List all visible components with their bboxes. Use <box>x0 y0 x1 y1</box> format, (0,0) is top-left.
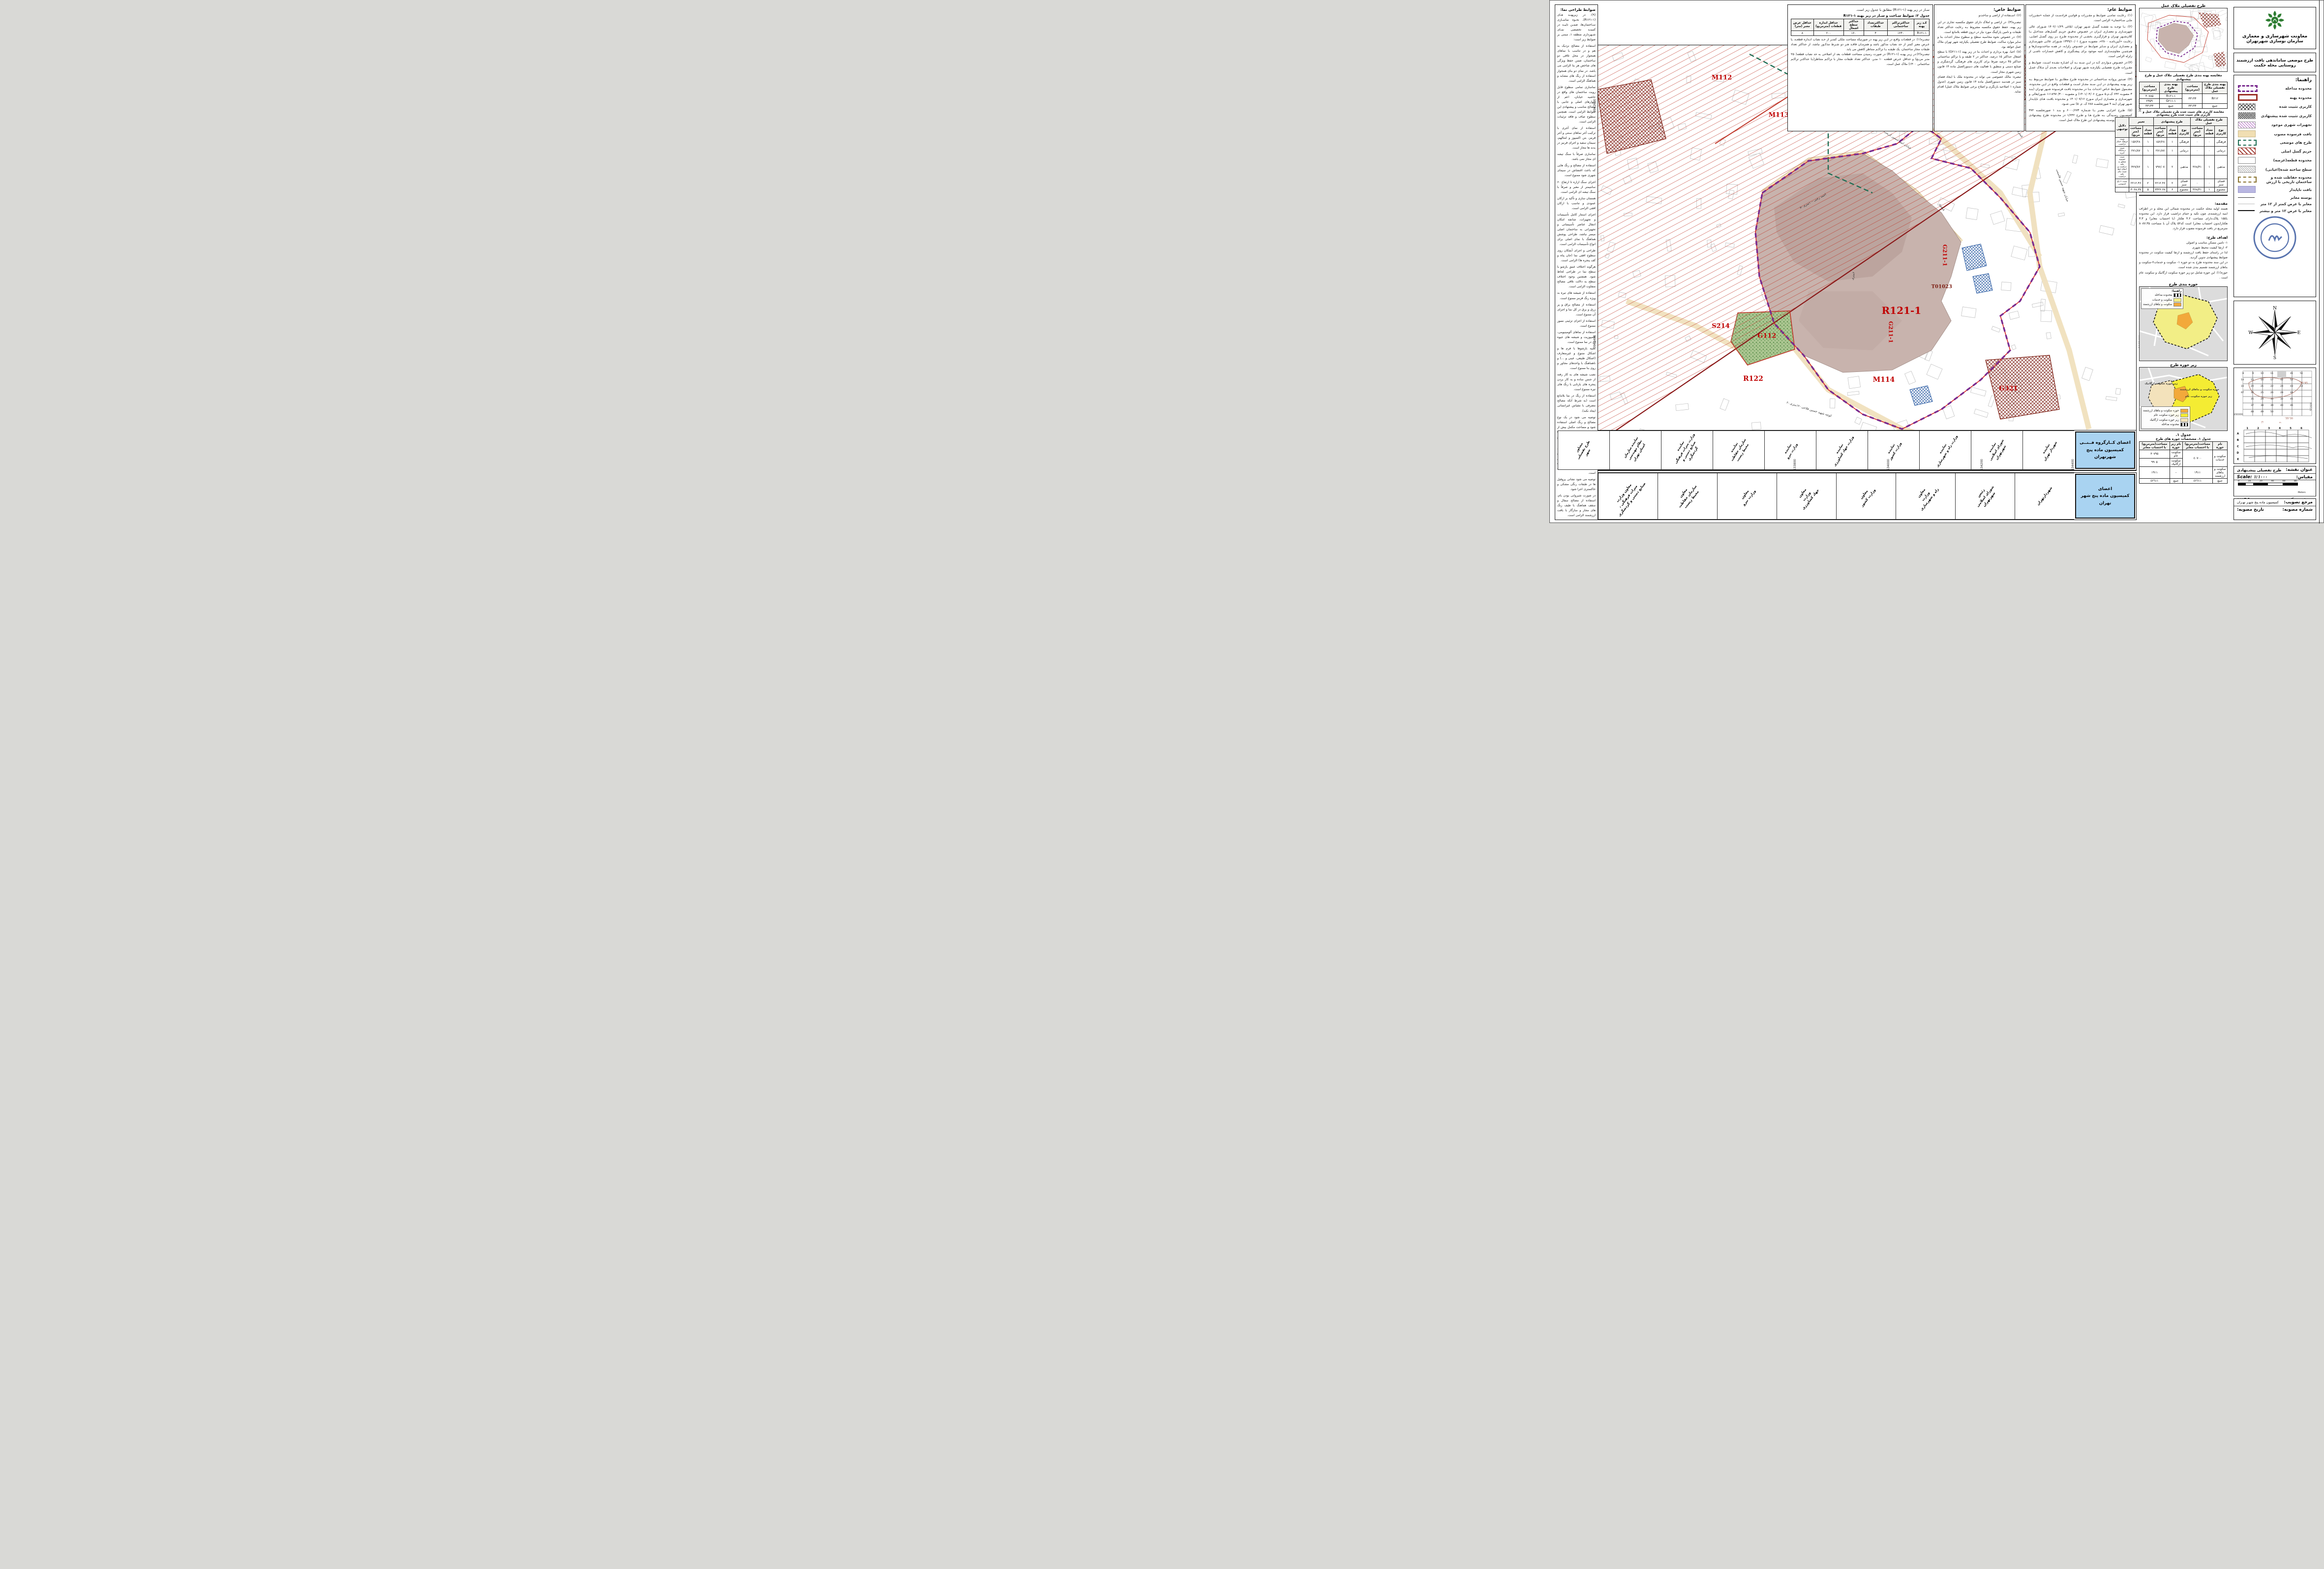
legend-swatch <box>2238 130 2256 137</box>
table2-lead: سـاز در زیر پهنه (R۱۲۱-۱) مطابق با جدول … <box>1791 7 1930 13</box>
minimap2-title: حوزه بندی طرح <box>2139 282 2228 286</box>
legend-swatch <box>2238 204 2255 204</box>
svg-text:38: 38 <box>2261 404 2264 407</box>
svg-text:16: 16 <box>2261 378 2264 381</box>
legend-swatch <box>2238 186 2256 193</box>
approval-date-label: تاریخ مصوبه: <box>2237 507 2264 512</box>
districts-table-caption1: جدول ۱. <box>2139 432 2228 437</box>
minimap-districts: راهنما: محدوده مداخلهسکونت و خدماتسکونت … <box>2139 286 2228 361</box>
svg-text:32: 32 <box>2280 398 2283 400</box>
intro-p2: لذا در راستای حفظ بافت ارزشمند و ارتقا ک… <box>2139 250 2228 260</box>
svg-text:33: 33 <box>2241 385 2244 388</box>
legend-swatch <box>2238 210 2255 211</box>
general-rule-item: (۱): رعایـت تمامـی ضوابـط و مقـررات و قو… <box>2029 13 2132 23</box>
table2-panel: سـاز در زیر پهنه (R۱۲۱-۱) مطابق با جدول … <box>1787 4 1933 131</box>
facade-rule-item: استفاده از رنگ در نما بلامانع است (به شر… <box>1557 394 1596 413</box>
svg-text:572600: 572600 <box>2310 402 2313 411</box>
svg-text:A: A <box>2237 432 2239 435</box>
intro-heading: مقدمه: <box>2215 201 2228 206</box>
plan-title-box: طرح موضعی ساماندهی بافت ارزشمند روستایی … <box>2233 53 2316 72</box>
svg-text:W: W <box>2248 331 2253 336</box>
zone-compare-table: پهنه بندی طرح تفصیلی ملاک عملمساحت (مترم… <box>2139 82 2228 109</box>
legend-item: محدوده مداخله <box>2238 85 2312 92</box>
legend-item: بافت فرسوده مصوب <box>2238 130 2312 137</box>
goals-heading: اهداف طرح: <box>2206 236 2228 240</box>
svg-text:E: E <box>2297 331 2301 336</box>
plan-sheet: ضوابط طراحی نما: (۹): در زیرپهنـه هـای (… <box>1549 0 2324 523</box>
committee-member-cell: معاون وزارت میراث فرهنگی ، صنایع دستی و … <box>1598 473 1658 520</box>
svg-text:21: 21 <box>2261 385 2264 388</box>
svg-text:25: 25 <box>2261 391 2264 394</box>
facade-rule-item: استفاده از شیشه های تیره به ویژه رنگ قرم… <box>1557 291 1596 301</box>
committee-member-cell: شهردارتهران <box>2015 473 2074 520</box>
facade-rule-item: نماسازی صرفأ با سنگ تیشه ای مجاز نمی باش… <box>1557 152 1596 162</box>
scale-unit: Meters <box>2298 492 2306 494</box>
svg-text:52: 52 <box>2290 378 2293 381</box>
legend-item: حریم گسل اصلی <box>2238 148 2312 154</box>
org-line1: معاونت شهرسازی و معماری <box>2234 33 2316 39</box>
comparison-column: طرح تفصیلی ملاک عمل مقایسه پهنه بندی طرح… <box>2139 3 2228 520</box>
intro-p4: حوزه(۱): این حوزه شامل دو زیر حوزه سکونت… <box>2139 271 2228 280</box>
keymap-box: 8910111341511415161742523320212224435347… <box>2233 368 2316 464</box>
org-line2: سازمان نوسازی شهرتهران <box>2234 39 2316 44</box>
scale-bar: 01020 406080 Meters <box>2234 480 2316 496</box>
special-rules-panel: ضوابط خاص: (۶): اسـتفاده از اراضی و ساخت… <box>1934 4 2024 131</box>
svg-text:3: 3 <box>2268 427 2270 430</box>
committee-main-cells: شهردارتهرانرئیس شورای اسلامی شهرتهرانمعا… <box>1598 473 2074 520</box>
committee-member-cell: نماینده وزارت راه و شهرسازی <box>1919 431 1971 470</box>
legend-item: محدوده حفاظت شده و ساختمان تاریخی با ارز… <box>2238 175 2312 184</box>
svg-text:10: 10 <box>2261 372 2264 375</box>
committee-technical-cells: نماینده شهردار تهراننماینده شورای اسلامی… <box>1558 431 2074 470</box>
legend-swatch <box>2238 112 2256 119</box>
legend-swatch <box>2238 157 2256 164</box>
general-rule-item: (۳):در خصـوص مـواردی کـه در ایـن سـند بـ… <box>2029 61 2132 75</box>
general-rules-list: (۱): رعایـت تمامـی ضوابـط و مقـررات و قو… <box>2029 13 2132 123</box>
svg-text:3930000: 3930000 <box>2234 413 2243 416</box>
committee-member-cell: نماینده وزارت کشور <box>1868 431 1919 470</box>
title-column: معاونت شهرسازی و معماری سازمان نوسازی شه… <box>2231 0 2320 523</box>
legend-item: سطح ساخته شده(اعیانی) <box>2238 166 2312 173</box>
committee-member-cell: رئیس شورای اسلامی شهرتهران <box>1955 473 2015 520</box>
districts-table: نام حوزهمساحت(مترمربع) با احتساب معابر ن… <box>2139 441 2228 484</box>
legend-item: پوسته معابر <box>2238 195 2312 200</box>
svg-text:6: 6 <box>2300 427 2302 430</box>
legend-item: معابر با عرض ۱۲ متر و بیشتر <box>2238 209 2312 213</box>
intro-p1: هسته اولیه محله حکمت در محدوده شمالی این… <box>2139 207 2228 231</box>
facade-rule-item: طراحی و اجرای آبچکان روی سطوح افقی نما (… <box>1557 248 1596 263</box>
committee-member-cell: نماینده وزارت نیرو <box>1764 431 1816 470</box>
facade-rule-item: استفاده از مصالح براق و پر زرق و برق در … <box>1557 303 1596 317</box>
svg-text:11: 11 <box>2270 372 2273 375</box>
legend-swatch <box>2238 197 2255 198</box>
legend-item: طرح های موضعی <box>2238 140 2312 146</box>
facade-rule-item: نماسازی تمامی سطوح قابل رویت ساختمان های… <box>1557 85 1596 124</box>
special-rule-note: تبصره: مالک خصوصی می تواند در محدوده ملک… <box>1937 75 2021 94</box>
svg-text:35: 35 <box>2251 398 2254 400</box>
table2-note2: تبصـره(۲):در زیـر پهنـه (R۱۲۱-۱) در صورت… <box>1791 52 1930 67</box>
legend-item: کاربری تثبیت شده پیشنهادی <box>2238 112 2312 119</box>
committee-member-cell: نماینده شورای اسلامی شهرتهران <box>1971 431 2022 470</box>
minimap-subdistricts: زیر حوزه سکونت ارگانیک حوزه سکونت و بناه… <box>2139 367 2228 431</box>
svg-text:51°15': 51°15' <box>2260 421 2264 423</box>
committee-member-cell: نماینده سازمان نظام مهندسی استان تهران <box>1609 431 1661 470</box>
special-rule-8: (۸): احیا، بهره برداری و احداث بنا در زی… <box>1937 50 2021 74</box>
special-rule-7: (۷): در خصوص نحوه محاسبه سطح و سطوح مجاز… <box>1937 35 2021 50</box>
facade-rule-item: همسان سازی و تأکید بر ارکان عمودی و تناس… <box>1557 196 1596 211</box>
legend-swatch <box>2238 140 2257 146</box>
legend-swatch <box>2238 122 2256 128</box>
goal-2: ۲- ارتقا کیفیت محیط شهری <box>2139 246 2228 250</box>
facade-rule-item: نصب شیشه های به کار رفته از جنس ساده و ب… <box>1557 372 1596 392</box>
svg-text:51: 51 <box>2300 372 2303 375</box>
plan-title-line1: طرح موضعی ساماندهی بافت ارزشمند <box>2234 58 2316 62</box>
facade-rule-item: هرگونه اختلاف عمق بازشو با سطح نما در طر… <box>1557 265 1596 289</box>
svg-text:4: 4 <box>2279 427 2281 430</box>
scale-value: Scale: ۱:۱۰۰۰ <box>2237 475 2267 480</box>
use-compare-title: مقایسه کاربری های تثبیت شده طرح تفصیلی م… <box>2139 111 2228 117</box>
svg-text:22: 22 <box>2270 385 2273 388</box>
legend-item: محدوده پهنه <box>2238 94 2312 101</box>
facade-rule-item: استفاده از مصالح و رنگ هایی که باعث اغتش… <box>1557 163 1596 178</box>
intro-section: مقدمه: هسته اولیه محله حکمت در محدوده شم… <box>2139 195 2228 280</box>
committee-member-cell: معاون سازمان حفاظت محیط زیست <box>1658 473 1717 520</box>
legend-swatch <box>2238 166 2256 173</box>
svg-text:14: 14 <box>2241 378 2244 381</box>
svg-text:50: 50 <box>2270 410 2273 413</box>
facade-rule-item: تعبیه بازشوها با فرم ها و اشکال متنوع و … <box>1557 346 1596 371</box>
minimap-current-plan <box>2139 8 2228 72</box>
legend-swatch <box>2238 85 2258 92</box>
svg-text:37: 37 <box>2251 404 2254 407</box>
plan-title-line2: روستایی محله حکمت <box>2234 62 2316 67</box>
compass-box: N E S W <box>2233 301 2316 365</box>
svg-text:2: 2 <box>2257 427 2259 430</box>
general-rule-item: (۲): بـا توجـه به نقشـه گسـل شـهر تهران،… <box>2029 25 2132 59</box>
facade-rule-item: اجرای سنگ ازاره تا ارتفاع ۶۰ سانتیمتر از… <box>1557 180 1596 195</box>
svg-text:17: 17 <box>2270 378 2273 381</box>
svg-text:24: 24 <box>2280 385 2283 388</box>
use-compare-table: طرح تفصیلی ملاک عمل طرح پیشنهادی تغییر د… <box>2115 117 2228 192</box>
svg-text:N: N <box>2273 306 2277 311</box>
minimap3-title: زیر حوزه طرح <box>2139 363 2228 367</box>
svg-text:زیر حوزه سکونت ارگانیک: زیر حوزه سکونت ارگانیک <box>2144 382 2177 385</box>
svg-text:45: 45 <box>2290 398 2293 400</box>
svg-text:48: 48 <box>2251 410 2254 413</box>
svg-text:51°30': 51°30' <box>2277 422 2282 423</box>
svg-text:29: 29 <box>2261 398 2264 400</box>
tehran-municipality-logo <box>2264 9 2286 31</box>
org-block: معاونت شهرسازی و معماری سازمان نوسازی شه… <box>2233 7 2316 49</box>
legend-item: بافت ناپایدار <box>2238 186 2312 193</box>
minimap1-title: طرح تفصیلی ملاک عمل <box>2139 3 2228 8</box>
svg-text:D: D <box>2237 452 2239 455</box>
svg-text:39: 39 <box>2270 404 2273 407</box>
svg-text:28: 28 <box>2280 391 2283 394</box>
general-rule-item: (۴): صـدور پروانـه سـاختمانی در محـدوده … <box>2029 77 2132 107</box>
svg-text:35°45': 35°45' <box>2299 382 2308 385</box>
committee-member-cell: نماینده شهردار تهران <box>2022 431 2074 470</box>
committee-member-cell: معاون وزارت نیرو <box>1717 473 1777 520</box>
approval-ref-value: کمیسیون ماده پنج شهـر تهـران <box>2237 500 2279 504</box>
svg-text:زیر حوزه سکونت عام: زیر حوزه سکونت عام <box>2185 395 2212 398</box>
legend-heading: راهنما: <box>2234 75 2316 83</box>
svg-text:42: 42 <box>2280 378 2283 381</box>
facade-rule-item: استفاده از مصالح نزدیک به هم و در تناسب … <box>1557 44 1596 83</box>
legend-item: کاربری تثبیت شده <box>2238 103 2312 110</box>
svg-text:9: 9 <box>2252 372 2254 375</box>
svg-text:35°30': 35°30' <box>2285 417 2293 420</box>
legend-swatch <box>2238 94 2258 101</box>
keymap-subgrid: 123456ABCDE <box>2234 425 2316 464</box>
minimap2-legend: راهنما: محدوده مداخلهسکونت و خدماتسکونت … <box>2141 288 2183 309</box>
map-title-label: عنوان نقشه: <box>2286 467 2313 472</box>
approval-box: مرجع تصویب: کمیسیون ماده پنج شهـر تهـران… <box>2233 498 2316 520</box>
map-title-value: طرح تفصیلی پیشـنهادی <box>2237 468 2281 472</box>
legend-box: راهنما: محدوده مداخله محدوده پهنه کاربری… <box>2233 75 2316 297</box>
svg-text:26: 26 <box>2270 391 2273 394</box>
committee-member-cell: معاون وزارت جهاد کشاورزی <box>1777 473 1836 520</box>
legend-item: معابر با عرض کمتر از ۱۲ متر <box>2238 202 2312 206</box>
svg-text:8: 8 <box>2242 372 2244 375</box>
committee-member-cell: نماینده وزارت میراث فرهنگی صنایع دستی و … <box>1661 431 1713 470</box>
legend-item: تجهیزات شهری موجود <box>2238 122 2312 128</box>
committee-member-cell: نماینده سازمان حفاظت محیط زیست <box>1713 431 1764 470</box>
facade-rule-item: ایجاد سرزندگی در نما با کاربرد بالکن ها … <box>1557 520 1596 521</box>
minimap3-legend: حوزه سکونت و بناهای ارزشمندزیر حوزه سکون… <box>2141 406 2190 429</box>
svg-text:43: 43 <box>2290 385 2293 388</box>
facade-rules-intro: (۹): در زیرپهنـه هـای (R۱۲۱-۱)، نحـوه نم… <box>1557 13 1596 42</box>
special-rules-heading: ضوابط خاص: <box>1937 7 2021 12</box>
svg-text:41: 41 <box>2290 372 2293 375</box>
legend-item: محدوده قطعه(عرصه) <box>2238 157 2312 164</box>
sheet-info-box: عنوان نقشه: طرح تفصیلی پیشـنهادی مقیاس: … <box>2233 466 2316 496</box>
facade-rules-heading: ضوابط طراحی نما: <box>1557 7 1596 12</box>
facade-rule-item: در صورت شیروانی بودن بام، استفاده از مصا… <box>1557 493 1596 518</box>
svg-text:B: B <box>2237 439 2239 442</box>
svg-text:49: 49 <box>2261 410 2264 413</box>
special-rules-lead: (۶): اسـتفاده از اراضی و ساخت‌و <box>1937 13 2021 18</box>
facade-rule-item: استفاده از نمای آجری با ترکیب آجر نماهای… <box>1557 126 1596 151</box>
special-rule-3: تبصـره(۳): در اراضی و املاک دارای حقوق م… <box>1937 20 2021 35</box>
council-stamp: اداره مصوبات شورای اسلامی شهر تهران ۱۴۰۱ <box>2252 215 2297 260</box>
zone-compare-title: مقایسه پهنه بندی طرح تفصیلی ملاک عمل و ط… <box>2139 73 2228 81</box>
committee-member-cell: معاون وزارت کشور <box>1836 473 1896 520</box>
svg-text:47: 47 <box>2241 391 2244 394</box>
svg-text:C: C <box>2237 445 2239 448</box>
svg-text:20: 20 <box>2251 385 2254 388</box>
general-rules-panel: ضوابط عام: (۱): رعایـت تمامـی ضوابـط و م… <box>2025 4 2136 131</box>
legend-swatch <box>2238 177 2257 183</box>
goal-1: ۱- تامین مسکن مناسب و اصولی <box>2139 241 2228 246</box>
table2: کـد زیر پهنهحداکثرتراکم ساختمانیحداکثرتع… <box>1791 19 1930 36</box>
compass-rose: N E S W <box>2248 306 2302 360</box>
svg-text:حوزه سکونت و بناهای ارزشمند: حوزه سکونت و بناهای ارزشمند <box>2180 388 2219 391</box>
committee-technical-row: اعضای کــارگروه فــنــیکمیسیون ماده پنج … <box>1598 430 2137 470</box>
facade-rule-item: استفاده از نماهای آلومینیومی، کامپوزیت و… <box>1557 330 1596 345</box>
committee-member-cell: معاون وزارت راه و شهرسازی <box>1896 473 1955 520</box>
facade-rule-item: توصیه می شود نشانی پروفیل ها در طبقات رن… <box>1557 477 1596 492</box>
facade-rule-item: اجرای استتار کامل تأسیسات و تجهیزات، چنا… <box>1557 213 1596 247</box>
table2-caption: جدول ۲: ضوابط سـاخت و سـاز در زیر پهنه R… <box>1791 14 1930 18</box>
table2-note1: تبصـره(۱): در قطعـات واقـع در ایـن زیر پ… <box>1791 37 1930 52</box>
approval-ref-label: مرجع تصویب: <box>2284 500 2313 505</box>
svg-text:5: 5 <box>2290 427 2292 430</box>
use-compare-rows: فرهنگی۰۰ فرهنگی۱۱۵۶/۲۸ ۱۱۵۶/۲۸ تثبیت فره… <box>2115 138 2228 192</box>
committee-member-cell: مشاور طرح تفصیلی شهر <box>1558 431 1609 470</box>
svg-text:S: S <box>2273 356 2276 360</box>
committee-member-cell: نماینده وزارت جهاد کشاورزی <box>1816 431 1868 470</box>
keymap-grid: 8910111341511415161742523320212224435347… <box>2234 368 2316 423</box>
committee-main-header: اعضایکمیسیون ماده پنج شهر تهران <box>2075 474 2135 519</box>
scale-label: مقیاس: <box>2296 475 2313 480</box>
committee-main-row: اعضایکمیسیون ماده پنج شهر تهران شهردارته… <box>1598 472 2137 520</box>
svg-text:1: 1 <box>2246 427 2248 430</box>
committee-technical-header: اعضای کــارگروه فــنــیکمیسیون ماده پنج … <box>2075 431 2135 469</box>
svg-text:E: E <box>2237 458 2239 461</box>
facade-rule-item: استفاده از اجزای تزئینی نسور ممنوع است. <box>1557 319 1596 329</box>
legend-swatch <box>2238 103 2256 110</box>
general-rules-heading: ضوابط عام: <box>2029 7 2132 12</box>
svg-text:46: 46 <box>2290 404 2293 407</box>
svg-text:اداره مصوبات شورای اسلامی شهر: اداره مصوبات شورای اسلامی شهر تهران ۱۴۰۱ <box>2252 215 2255 216</box>
svg-text:40: 40 <box>2280 404 2283 407</box>
approval-no-label: شماره مصوبه: <box>2282 507 2313 512</box>
map-coords-left: 39626003962400 <box>1592 45 1597 471</box>
intro-p3: در این سند محدوده طرح به دو حوزه ۱- سکون… <box>2139 260 2228 270</box>
legend-swatch <box>2238 148 2256 154</box>
districts-table-caption2: جدول ۱. مشخصات حوزه های طرح <box>2139 437 2228 441</box>
legend-items: محدوده مداخله محدوده پهنه کاربری تثبیت ش… <box>2234 85 2316 213</box>
